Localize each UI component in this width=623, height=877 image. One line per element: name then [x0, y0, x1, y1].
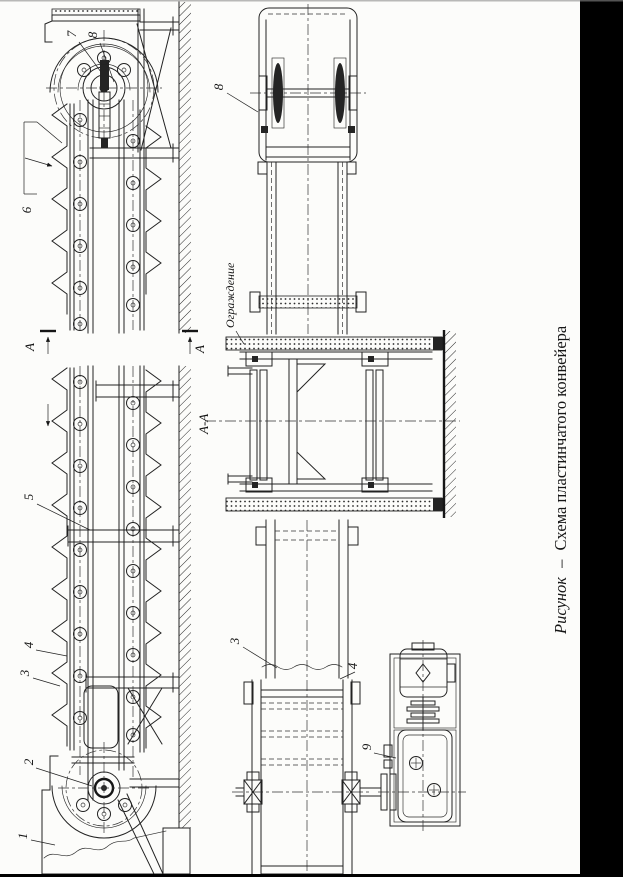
- section-view-label: А-А: [196, 414, 211, 435]
- drive-unit: [378, 640, 466, 832]
- section-letter: А: [192, 345, 207, 354]
- roller-axle: [82, 68, 86, 72]
- part-label-2: 2: [21, 758, 36, 765]
- svg-text:Рисунок – Схема пл: Рисунок – Схема пластинчатого конвейера: [551, 325, 570, 635]
- section-cut-marker-right: А: [182, 331, 207, 354]
- part-label-6: 6: [19, 206, 34, 213]
- tail-takeup-station: [42, 686, 190, 874]
- plate-cleats: [146, 370, 161, 748]
- plate-cleats: [52, 104, 67, 314]
- section-cut-marker-left: А: [22, 331, 56, 354]
- plan-view-head: 8 Ограждение: [211, 4, 366, 344]
- conveyor-drawing: 7 8 6 А А: [0, 0, 623, 877]
- part-label-4-plan: 4: [345, 662, 360, 669]
- material-pile: [44, 831, 166, 858]
- section-letter: А: [22, 343, 37, 352]
- scan-band-right: [580, 0, 623, 877]
- part-label-8-plan: 8: [211, 83, 226, 90]
- drive-sprocket-right: [335, 63, 345, 123]
- section-view-a-a: А-А: [196, 330, 460, 518]
- guard-note: Ограждение: [223, 262, 237, 328]
- foundation-block: [163, 828, 190, 874]
- conveyor-strands: [52, 52, 161, 821]
- part-label-7: 7: [64, 30, 79, 37]
- chain-roller: [77, 799, 90, 812]
- caption-prefix: Рисунок: [551, 577, 570, 635]
- side-view-callouts: 7 8 6 А А: [15, 30, 207, 845]
- part-label-9: 9: [359, 743, 374, 750]
- plate-break-line: [262, 665, 342, 670]
- plate-cleats: [52, 368, 67, 746]
- part-label-3-plan: 3: [227, 637, 242, 645]
- side-elevation-view: 7 8 6 А А: [15, 2, 207, 874]
- roller-axle: [122, 68, 126, 72]
- guard-board-top: [226, 337, 442, 350]
- scanned-drawing-page: 7 8 6 А А: [0, 0, 623, 877]
- roller-axle: [81, 803, 85, 807]
- caption-dash: –: [551, 559, 570, 569]
- plate-cleats: [146, 126, 161, 294]
- chain-roller: [78, 64, 91, 77]
- caption-title: Схема пластинчатого конвейера: [551, 325, 570, 550]
- chain-roller: [118, 64, 131, 77]
- takeup-window: [84, 686, 118, 748]
- callout-6-bracket: [24, 122, 62, 194]
- figure-caption: Рисунок – Схема пластинчатого конвейера: [551, 325, 570, 635]
- scan-line-top: [0, 0, 623, 2]
- guard-board-bottom: [226, 498, 442, 511]
- drive-sprocket-left: [273, 63, 283, 123]
- plan-view-tail: 3 4 9: [227, 520, 396, 874]
- feed-hopper: [42, 756, 58, 874]
- part-label-3: 3: [17, 669, 32, 677]
- electric-motor: [400, 643, 455, 697]
- part-label-1: 1: [15, 833, 30, 840]
- part-label-4: 4: [21, 641, 36, 648]
- roller-axle: [123, 803, 127, 807]
- part-label-5: 5: [21, 493, 36, 500]
- wall-hatching: [445, 331, 456, 517]
- part-label-8: 8: [85, 31, 100, 38]
